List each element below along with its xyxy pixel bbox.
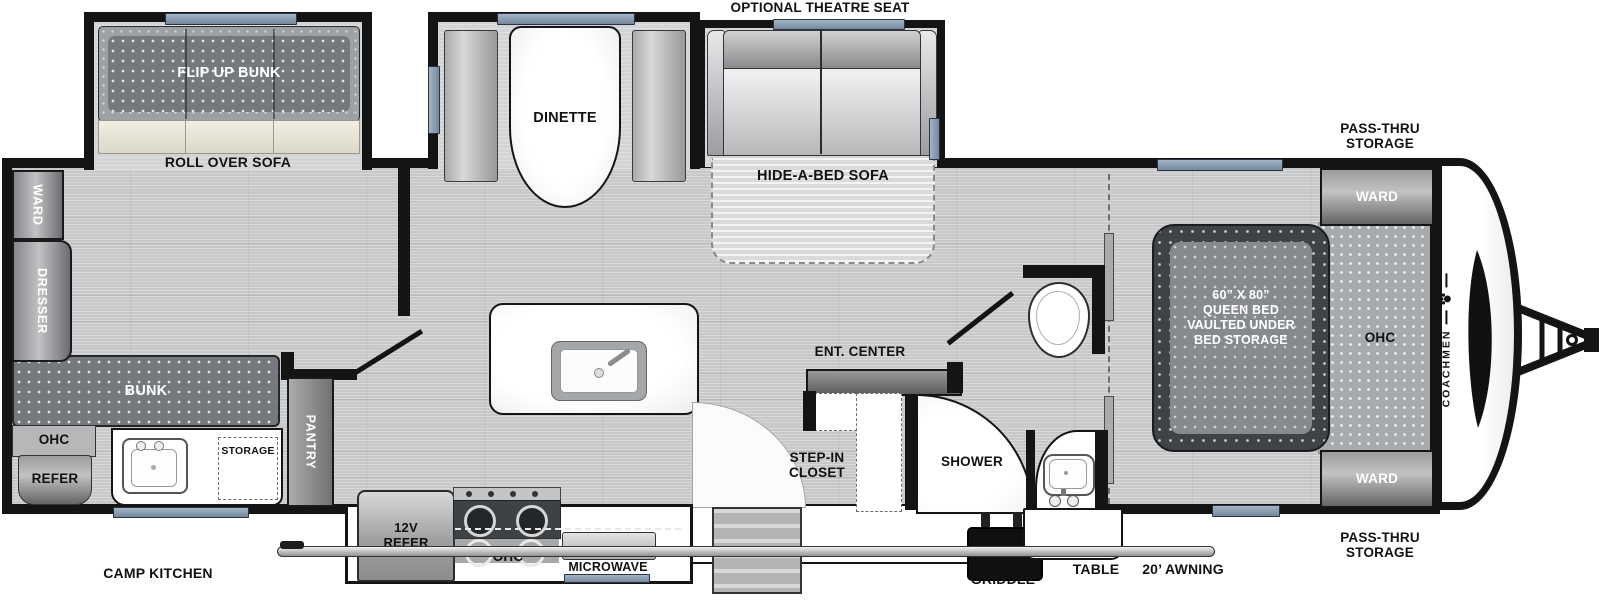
pantry-label: PANTRY [304, 415, 318, 470]
wall [1026, 430, 1035, 511]
awning-rod [277, 546, 1215, 557]
dinette-table: DINETTE [509, 26, 621, 208]
step-in-closet [856, 393, 902, 512]
queen-bed: 60” X 80” QUEEN BED VAULTED UNDER BED ST… [1152, 224, 1330, 452]
brand-rule [1445, 273, 1447, 287]
griddle-label: GRIDDLE [943, 572, 1063, 588]
window [773, 19, 905, 30]
sofa-back [723, 30, 921, 70]
camp-refer-label: REFER [19, 471, 91, 486]
camp-storage: STORAGE [218, 437, 278, 500]
pantry: PANTRY [287, 377, 334, 507]
wall [905, 394, 916, 510]
sofa-seat [723, 68, 921, 156]
kitchen-island [489, 303, 699, 415]
step-in-closet-label: STEP-IN CLOSET [778, 450, 856, 480]
pass-thru-storage-top-label: PASS-THRU STORAGE [1315, 121, 1445, 151]
window [497, 13, 635, 25]
front-cap-decal [1460, 248, 1502, 430]
bed-size-label: 60” X 80” [1212, 288, 1269, 302]
awning-end-cap [280, 541, 304, 549]
brand-mark: COACHMEN [1432, 252, 1460, 428]
roll-over-sofa-seat [98, 120, 360, 154]
sliding-door [1104, 233, 1114, 321]
camp-storage-label: STORAGE [213, 446, 283, 458]
hide-a-bed-footprint: HIDE-A-BED SOFA [711, 158, 935, 264]
flip-up-bunk-label: FLIP UP BUNK [99, 65, 359, 81]
counter-dash-line [455, 528, 681, 530]
bunk-label: BUNK [14, 383, 278, 399]
dresser: DRESSER [12, 240, 72, 362]
roll-over-sofa-label: ROLL OVER SOFA [94, 155, 362, 171]
window [165, 13, 297, 25]
awning-label: 20’ AWNING [1123, 562, 1243, 578]
ward-rear-label: WARD [31, 184, 45, 225]
ent-center-label: ENT. CENTER [790, 344, 930, 359]
window [1212, 505, 1280, 517]
toilet-nook-wall [1092, 265, 1105, 354]
ward-front-top-label: WARD [1356, 189, 1398, 204]
dresser-label: DRESSER [35, 268, 49, 334]
wall [1095, 430, 1108, 511]
camp-sink [122, 438, 188, 494]
floorplan: FLIP UP BUNK ROLL OVER SOFA DINETTE OPTI… [0, 0, 1600, 602]
bed-note-label: VAULTED UNDER [1187, 318, 1295, 332]
window [428, 66, 440, 134]
bedroom-ohc-label: OHC [1352, 330, 1408, 345]
wall [803, 391, 816, 431]
camp-refer: REFER [18, 455, 92, 505]
dinette-label: DINETTE [511, 110, 619, 126]
ward-front-bottom: WARD [1320, 450, 1434, 508]
bed-note-label2: BED STORAGE [1194, 333, 1288, 347]
microwave-label: MICROWAVE [548, 560, 668, 574]
camp-kitchen-label: CAMP KITCHEN [58, 566, 258, 582]
ward-front-bottom-label: WARD [1356, 471, 1398, 486]
toilet-nook-wall [1023, 265, 1097, 278]
wall [947, 362, 963, 393]
camp-ohc-label: OHC [13, 432, 95, 447]
dinette-slide-out: DINETTE [428, 12, 700, 169]
window [564, 574, 650, 583]
bunk-room-wall [398, 168, 410, 316]
dinette-bench-right [632, 30, 686, 182]
bed-type-label: QUEEN BED [1203, 303, 1279, 317]
coachmen-logo-icon [1440, 292, 1453, 305]
theatre-seat-slide-out [697, 20, 945, 167]
window [1157, 159, 1283, 171]
flip-up-bunk: FLIP UP BUNK [98, 26, 360, 122]
optional-theatre-seat-label: OPTIONAL THEATRE SEAT [690, 0, 950, 15]
bunk-slide-out: FLIP UP BUNK ROLL OVER SOFA [84, 12, 372, 170]
bunk-lower: BUNK [12, 355, 280, 427]
ward-front-top: WARD [1320, 168, 1434, 226]
dinette-bench-left [444, 30, 498, 182]
camp-kitchen-ohc: OHC [12, 425, 96, 457]
window [929, 118, 940, 160]
brand-rule [1445, 310, 1447, 324]
shower-label: SHOWER [918, 454, 1026, 469]
island-sink [551, 341, 647, 401]
entertainment-center [806, 369, 962, 396]
refer-12v: 12V REFER [357, 490, 455, 582]
pass-thru-storage-bottom-label: PASS-THRU STORAGE [1315, 530, 1445, 560]
hide-a-bed-label: HIDE-A-BED SOFA [713, 168, 933, 184]
ward-rear: WARD [12, 170, 64, 240]
brand-label: COACHMEN [1440, 329, 1452, 407]
camp-kitchen-door [113, 507, 249, 518]
